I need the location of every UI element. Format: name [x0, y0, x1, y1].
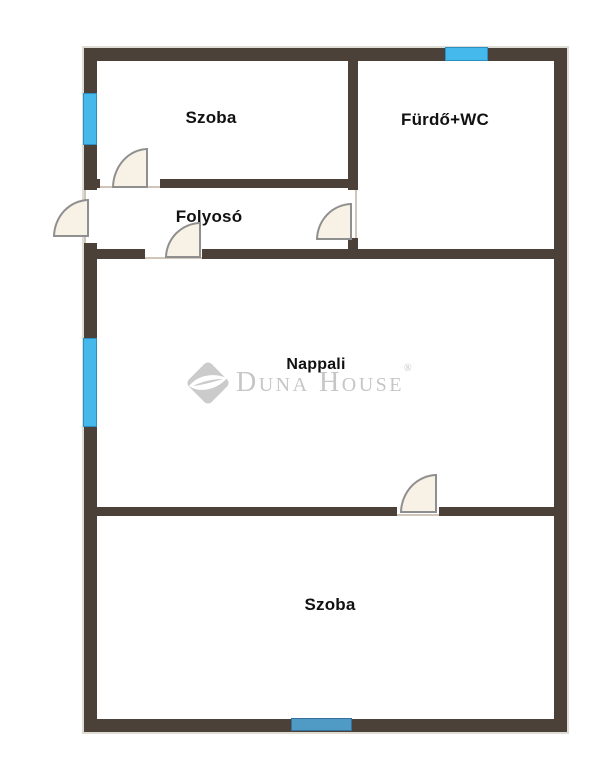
room-label-nappali: Nappali	[286, 356, 345, 374]
threshold-furdo	[355, 190, 357, 238]
threshold-szoba-bottom	[397, 514, 439, 516]
door-swing-icon-entry	[53, 199, 89, 237]
window-marker-szoba-left	[83, 93, 97, 145]
outer-wall-right	[554, 48, 567, 732]
plan-interior	[84, 48, 567, 732]
room-label-furdo-wc: Fürdő+WC	[401, 110, 489, 130]
outer-wall-top	[84, 48, 567, 61]
floor-plan: Duna House® Szoba Fürdő+WC Folyosó Nappa…	[0, 0, 600, 772]
room-label-szoba-bottom: Szoba	[304, 595, 355, 615]
window-marker-szoba-bottom	[291, 718, 352, 731]
wall-szoba-furdo	[348, 61, 358, 190]
wall-nappali-szoba	[97, 507, 554, 516]
room-label-szoba-top: Szoba	[185, 108, 236, 128]
window-marker-nappali-left	[83, 338, 97, 427]
window-marker-furdo-top	[445, 47, 488, 61]
room-label-folyoso: Folyosó	[176, 207, 243, 227]
